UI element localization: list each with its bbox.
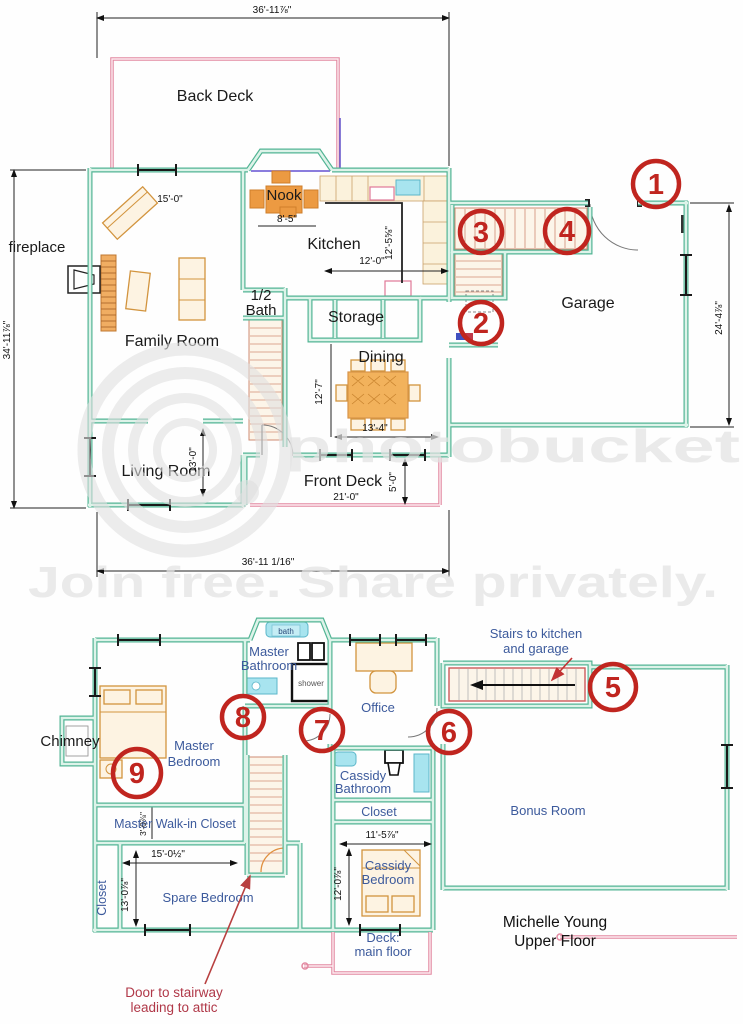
cassidy-tub <box>334 752 356 766</box>
master-bathroom-label-1: Master <box>249 644 289 659</box>
deck-label-2: main floor <box>354 944 412 959</box>
garage-entry-door <box>585 199 686 250</box>
dining-label: Dining <box>358 349 403 366</box>
floor-plan-drawing: Back Deck Nook Kitchen fireplace Family … <box>0 0 743 1024</box>
plan-title-1: Michelle Young <box>503 914 607 931</box>
dim-family-width: 15'-0" <box>157 194 183 205</box>
watermark-tagline: Join free. Share privately. <box>28 558 718 607</box>
office-chair <box>370 671 396 693</box>
bookcase <box>101 255 116 331</box>
dim-front-deck-width: 21'-0" <box>333 492 359 503</box>
attic-note-2: leading to attic <box>130 1000 217 1015</box>
marker-8: 8 <box>222 696 264 738</box>
dim-nook-width: 8'-5" <box>277 214 297 225</box>
dim-kitchen-depth: 12'-5⅝" <box>384 226 395 260</box>
dim-spare-width: 15'-0½" <box>151 849 185 860</box>
garage-label: Garage <box>561 295 614 312</box>
office-label: Office <box>361 700 395 715</box>
closet-left-label: Closet <box>95 880 109 916</box>
dim-garage-depth: 24'-4⅞" <box>714 301 725 335</box>
bonus-stairs <box>449 668 585 701</box>
family-room-furniture <box>101 187 205 331</box>
stairs-note-1: Stairs to kitchen <box>490 626 583 641</box>
master-bathroom-label-2: Bathroom <box>241 658 297 673</box>
marker-7: 7 <box>301 709 343 751</box>
chimney-label: Chimney <box>40 733 100 750</box>
dim-cassidy-depth: 12'-0⅞" <box>333 867 344 901</box>
master-walkin-label: Master Walk-in Closet <box>114 817 236 831</box>
attic-stairs <box>249 757 285 873</box>
dim-walkin-depth: 3'-0⅞" <box>138 812 148 836</box>
master-bedroom-label-2: Bedroom <box>168 754 221 769</box>
cassidy-bathroom-label-2: Bathroom <box>335 781 391 796</box>
dim-left-height: 34'-11⅞" <box>2 320 13 359</box>
back-deck-label: Back Deck <box>177 88 254 105</box>
front-deck-label: Front Deck <box>304 473 383 490</box>
dim-kitchen-width: 12'-0" <box>359 256 385 267</box>
cassidy-toilet <box>385 750 403 763</box>
svg-text:2: 2 <box>473 308 489 340</box>
office-desk <box>356 643 412 693</box>
bath-label: bath <box>278 627 294 636</box>
shelf-unit <box>179 258 205 320</box>
bonus-room-label: Bonus Room <box>510 803 585 818</box>
dim-front-deck-depth: 5'-0" <box>388 472 399 492</box>
svg-text:1: 1 <box>648 169 664 201</box>
half-bath-label-2: Bath <box>246 302 277 319</box>
kitchen-sink <box>396 180 420 195</box>
svg-text:6: 6 <box>441 717 457 749</box>
floor-plan-page: Back Deck Nook Kitchen fireplace Family … <box>0 0 743 1024</box>
stairs-note-2: and garage <box>503 641 569 656</box>
marker-6: 6 <box>428 711 470 753</box>
marker-1: 1 <box>633 161 679 207</box>
cassidy-bedroom-label-1: Cassidy <box>365 858 412 873</box>
cassidy-sink <box>414 754 429 792</box>
fireplace-symbol <box>68 266 100 293</box>
dim-dining-depth: 12'-7" <box>314 379 325 405</box>
attic-note-1: Door to stairway <box>125 985 223 1000</box>
nook-label: Nook <box>266 187 302 204</box>
plan-title-2: Upper Floor <box>514 933 596 950</box>
upper-floor-plan: bath Master Bathroom shower Office Chimn… <box>40 620 737 1015</box>
master-bedroom-label-1: Master <box>174 738 214 753</box>
svg-text:5: 5 <box>605 672 621 704</box>
dim-cassidy-width: 11'-5⅞" <box>365 830 399 841</box>
svg-text:4: 4 <box>559 216 575 248</box>
cassidy-bedroom-label-2: Bedroom <box>362 872 415 887</box>
shower-label: shower <box>298 679 324 688</box>
spare-bedroom-label: Spare Bedroom <box>162 890 253 905</box>
fireplace-label: fireplace <box>9 239 66 256</box>
svg-text:8: 8 <box>235 702 251 734</box>
watermark-logo-text: photobucket <box>285 420 740 472</box>
deck-label-1: Deck: <box>366 930 399 945</box>
kitchen-label: Kitchen <box>307 236 360 253</box>
storage-label: Storage <box>328 309 384 326</box>
svg-text:3: 3 <box>473 217 489 249</box>
stove <box>385 281 411 296</box>
marker-2: 2 <box>460 302 502 344</box>
fridge <box>370 187 394 200</box>
svg-text:9: 9 <box>129 758 145 790</box>
closet-hall-label: Closet <box>361 805 397 819</box>
svg-text:7: 7 <box>314 715 330 747</box>
toilet <box>298 643 310 660</box>
dim-top-width: 36'-11⅞" <box>253 5 292 16</box>
dim-spare-depth: 13'-0⅞" <box>120 878 131 912</box>
marker-5: 5 <box>590 664 636 710</box>
dim-living-depth: 13'-0" <box>188 447 199 473</box>
vanity-sink <box>247 678 277 694</box>
